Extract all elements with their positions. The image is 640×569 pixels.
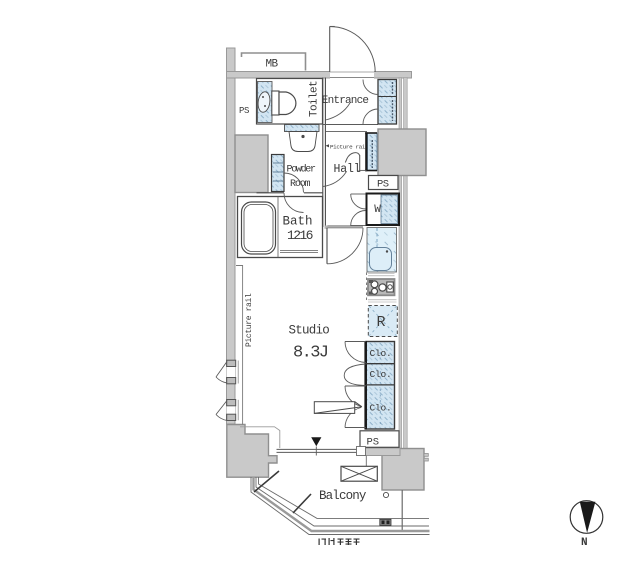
svg-text:Bath: Bath <box>283 214 313 228</box>
svg-text:PS: PS <box>239 106 249 116</box>
svg-text:Clo.: Clo. <box>370 403 392 414</box>
svg-text:Picture rail: Picture rail <box>330 143 369 150</box>
svg-text:PS: PS <box>377 179 389 191</box>
svg-text:PS: PS <box>367 437 380 449</box>
svg-text:1216: 1216 <box>287 228 313 243</box>
svg-text:MB: MB <box>266 59 279 71</box>
svg-text:Powder: Powder <box>287 163 317 175</box>
svg-text:Clo.: Clo. <box>370 348 392 359</box>
svg-text:Clo.: Clo. <box>370 369 392 380</box>
svg-text:Room: Room <box>290 179 311 190</box>
svg-text:Picture rail: Picture rail <box>245 293 254 347</box>
svg-text:W: W <box>374 204 381 216</box>
svg-text:8.3J: 8.3J <box>293 344 328 363</box>
svg-text:Toilet: Toilet <box>309 81 321 117</box>
svg-text:N: N <box>581 537 588 549</box>
svg-text:Entrance: Entrance <box>322 95 369 107</box>
svg-text:Balcony: Balcony <box>319 489 367 503</box>
svg-text:Hall: Hall <box>334 163 361 176</box>
svg-text:R: R <box>377 314 386 331</box>
svg-text:Studio: Studio <box>289 324 330 338</box>
